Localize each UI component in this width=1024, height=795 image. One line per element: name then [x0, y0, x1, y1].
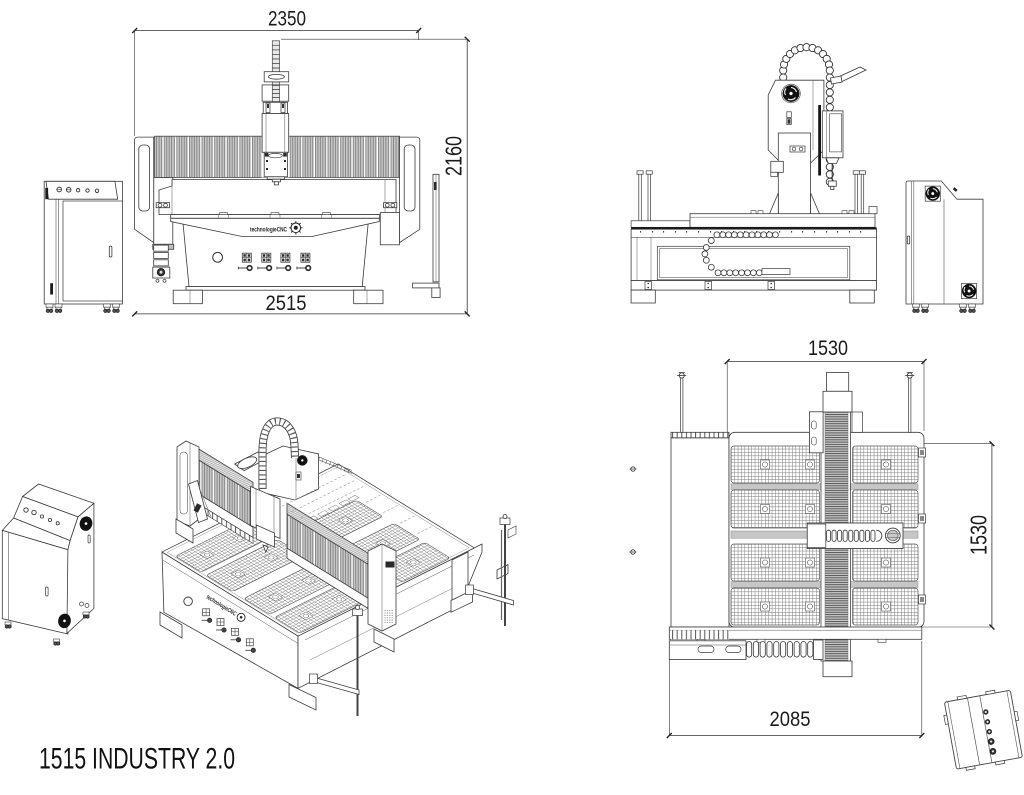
svg-text:technologieCNC: technologieCNC	[250, 227, 287, 234]
svg-text:2515: 2515	[266, 292, 307, 315]
svg-text:2085: 2085	[770, 708, 811, 731]
svg-text:1530: 1530	[808, 337, 848, 360]
svg-text:1515 INDUSTRY 2.0: 1515 INDUSTRY 2.0	[39, 743, 235, 776]
svg-text:1530: 1530	[966, 515, 992, 555]
svg-text:2160: 2160	[441, 136, 467, 176]
svg-text:2350: 2350	[268, 8, 306, 31]
